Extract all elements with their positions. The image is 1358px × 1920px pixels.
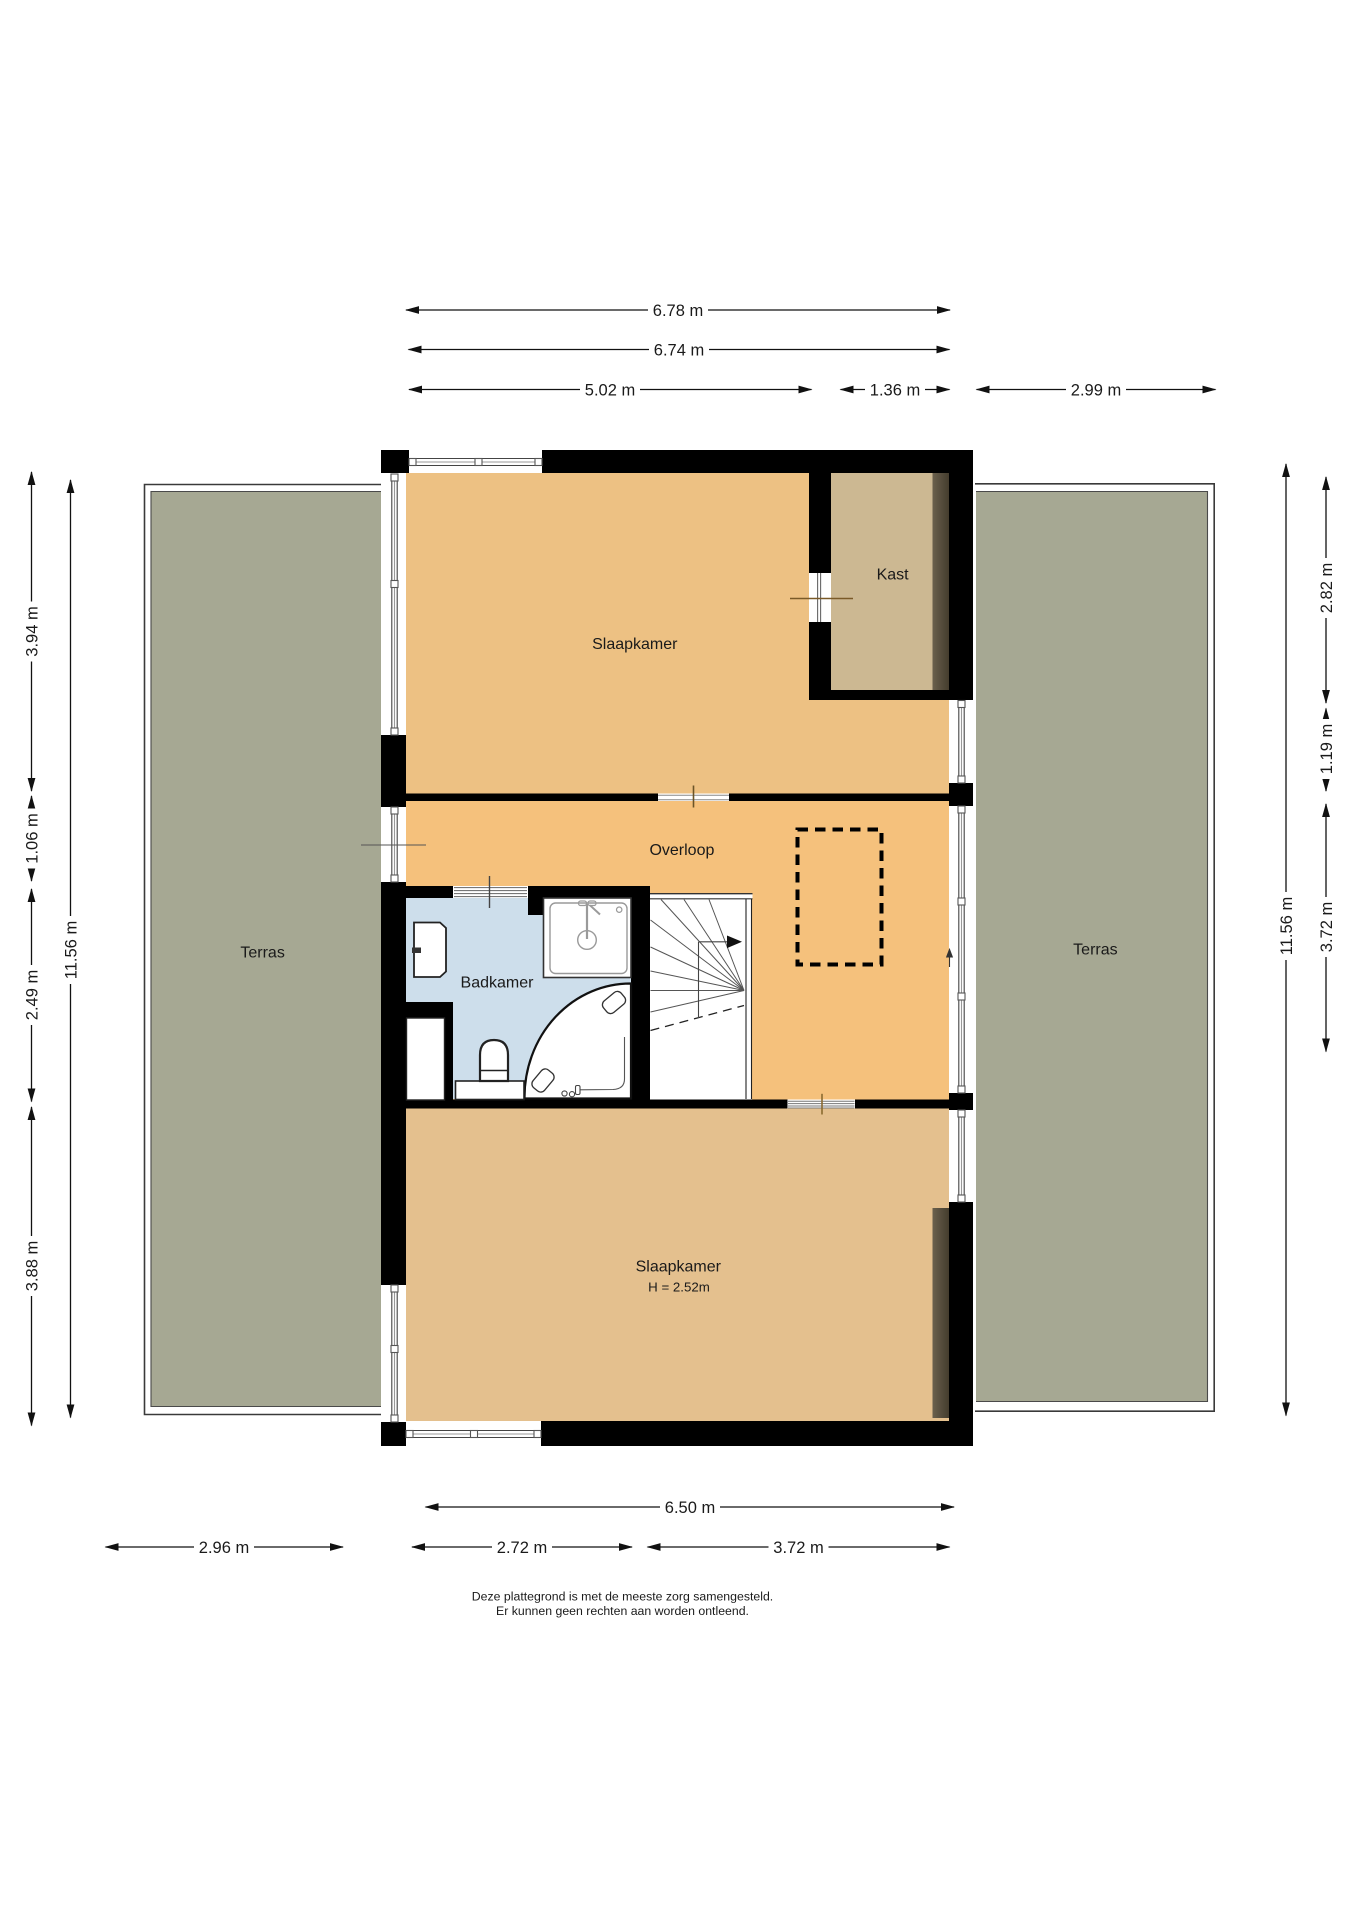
svg-text:2.49 m: 2.49 m	[23, 970, 41, 1020]
svg-text:3.94 m: 3.94 m	[23, 606, 41, 656]
svg-text:1.36 m: 1.36 m	[870, 381, 920, 399]
svg-text:11.56 m: 11.56 m	[62, 921, 80, 979]
svg-text:Kast: Kast	[877, 567, 910, 584]
svg-text:3.72 m: 3.72 m	[1318, 902, 1336, 952]
svg-text:2.99 m: 2.99 m	[1071, 381, 1121, 399]
svg-text:5.02 m: 5.02 m	[585, 381, 635, 399]
svg-text:Badkamer: Badkamer	[461, 975, 535, 992]
svg-text:6.78 m: 6.78 m	[653, 302, 703, 320]
svg-text:Slaapkamer: Slaapkamer	[592, 636, 678, 653]
svg-text:6.74 m: 6.74 m	[654, 341, 704, 359]
svg-text:3.72 m: 3.72 m	[773, 1539, 823, 1557]
svg-text:Overloop: Overloop	[649, 842, 714, 859]
svg-text:Deze plattegrond is met de mee: Deze plattegrond is met de meeste zorg s…	[472, 1590, 773, 1604]
svg-text:H = 2.52m: H = 2.52m	[648, 1280, 710, 1295]
svg-text:11.56 m: 11.56 m	[1278, 897, 1296, 955]
svg-text:Er kunnen geen rechten aan wor: Er kunnen geen rechten aan worden ontlee…	[496, 1604, 749, 1618]
svg-text:2.82 m: 2.82 m	[1318, 563, 1336, 613]
svg-text:2.96 m: 2.96 m	[199, 1539, 249, 1557]
svg-text:Terras: Terras	[1073, 942, 1117, 959]
svg-text:1.19 m: 1.19 m	[1318, 724, 1336, 774]
svg-text:2.72 m: 2.72 m	[497, 1539, 547, 1557]
svg-text:6.50 m: 6.50 m	[665, 1499, 715, 1517]
svg-text:1.06 m: 1.06 m	[23, 813, 41, 863]
svg-text:Slaapkamer: Slaapkamer	[636, 1259, 722, 1276]
svg-text:Terras: Terras	[240, 945, 284, 962]
svg-text:3.88 m: 3.88 m	[23, 1241, 41, 1291]
